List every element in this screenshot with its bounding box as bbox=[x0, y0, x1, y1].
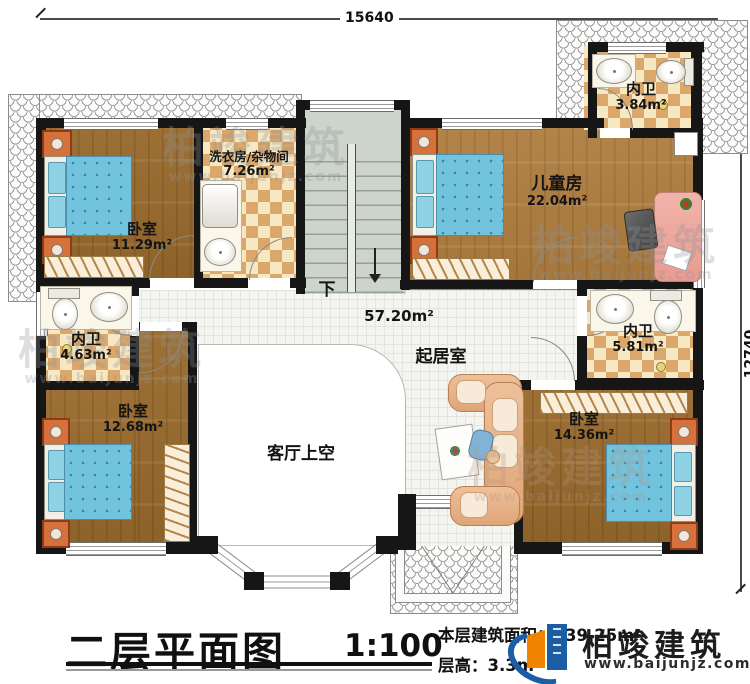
room-name: 内卫 bbox=[60, 330, 111, 348]
stairs-down-text: 下 bbox=[319, 280, 336, 300]
plant-icon bbox=[678, 196, 694, 212]
room-name: 儿童房 bbox=[527, 174, 587, 194]
room-area: 3.84m² bbox=[615, 98, 666, 114]
mattress-icon bbox=[64, 444, 132, 520]
room-label-bath-top: 内卫 3.84m² bbox=[615, 80, 666, 114]
living-area-label: 57.20m² bbox=[364, 307, 434, 325]
mattress-icon bbox=[436, 154, 504, 236]
pillow-icon bbox=[674, 486, 692, 516]
room-area: 57.20m² bbox=[364, 307, 434, 325]
sink-icon bbox=[204, 238, 236, 266]
room-name: 内卫 bbox=[615, 80, 666, 98]
nightstand-icon bbox=[410, 128, 438, 156]
door-bath-right bbox=[577, 296, 587, 336]
room-label-bedroom-bottom-left: 卧室 12.68m² bbox=[103, 402, 163, 436]
wall bbox=[401, 100, 410, 290]
bay-window bbox=[182, 488, 432, 610]
floor-plan-page: 15640 12740 bbox=[0, 0, 750, 684]
room-area: 7.26m² bbox=[209, 164, 289, 180]
pillow-icon bbox=[416, 160, 434, 194]
mattress-icon bbox=[606, 444, 672, 522]
rug-icon bbox=[412, 258, 510, 280]
room-label-children: 儿童房 22.04m² bbox=[527, 174, 587, 210]
window bbox=[226, 118, 268, 130]
room-name: 客厅上空 bbox=[267, 444, 335, 464]
room-area: 22.04m² bbox=[527, 194, 587, 210]
floor-drain-icon bbox=[656, 362, 666, 372]
window bbox=[608, 42, 666, 54]
brand-website: www.baijunjz.com bbox=[584, 656, 750, 672]
pillow-icon bbox=[674, 452, 692, 482]
door-bedroom-bottom-right bbox=[531, 380, 575, 390]
nightstand-icon bbox=[42, 418, 70, 446]
sink-icon bbox=[90, 292, 128, 322]
sink-icon bbox=[596, 294, 634, 324]
sofa-cushion bbox=[456, 380, 486, 404]
room-label-laundry: 洗衣房/杂物间 7.26m² bbox=[209, 149, 289, 180]
stair-handrail bbox=[347, 144, 356, 292]
stairs-down-arrow-icon bbox=[374, 248, 376, 274]
wall bbox=[691, 42, 702, 138]
pillow-icon bbox=[416, 196, 434, 228]
room-name: 内卫 bbox=[612, 322, 663, 340]
window bbox=[562, 542, 662, 556]
room-area: 12.68m² bbox=[103, 420, 163, 436]
wall bbox=[398, 494, 416, 550]
pillow-icon bbox=[48, 162, 66, 194]
window bbox=[64, 118, 158, 130]
sofa-cushion bbox=[460, 492, 488, 518]
person-head-icon bbox=[486, 450, 500, 464]
room-area: 11.29m² bbox=[112, 238, 172, 254]
flowers-icon bbox=[448, 444, 462, 458]
nightstand-icon bbox=[670, 522, 698, 550]
wardrobe-icon bbox=[164, 444, 190, 542]
niche-box bbox=[674, 132, 698, 156]
room-label-bedroom-top-left: 卧室 11.29m² bbox=[112, 220, 172, 254]
right-dimension-label: 12740 bbox=[742, 326, 750, 383]
door-bedroom-bottom-left bbox=[140, 322, 182, 331]
room-name: 洗衣房/杂物间 bbox=[209, 149, 289, 164]
stairs-down-arrowhead-icon bbox=[369, 274, 381, 283]
room-name: 起居室 bbox=[416, 347, 467, 367]
title-underline-thin bbox=[66, 669, 432, 671]
room-area: 5.81m² bbox=[612, 340, 663, 356]
washing-machine-icon bbox=[202, 184, 238, 228]
brand-logo-building-blue-icon bbox=[547, 624, 567, 670]
pillow-icon bbox=[48, 196, 66, 228]
room-label-void: 客厅上空 bbox=[267, 444, 335, 464]
computer-icon bbox=[623, 208, 658, 252]
pillow-icon bbox=[48, 482, 65, 512]
plan-scale: 1:100 bbox=[344, 628, 443, 664]
dimension-tick bbox=[35, 8, 45, 18]
room-label-bath-left: 内卫 4.63m² bbox=[60, 330, 111, 364]
room-label-bath-right: 内卫 5.81m² bbox=[612, 322, 663, 356]
nightstand-icon bbox=[670, 418, 698, 446]
room-name: 卧室 bbox=[554, 410, 614, 428]
brand-logo-building-orange-icon bbox=[527, 630, 545, 668]
room-label-bedroom-bottom-right: 卧室 14.36m² bbox=[554, 410, 614, 444]
wall bbox=[36, 381, 139, 390]
room-name: 卧室 bbox=[103, 402, 163, 420]
window bbox=[66, 542, 166, 556]
room-area: 4.63m² bbox=[60, 348, 111, 364]
top-dimension-label: 15640 bbox=[340, 10, 399, 26]
stairs-down-label: 下 bbox=[319, 280, 336, 300]
window bbox=[442, 118, 542, 130]
wall bbox=[296, 100, 305, 294]
room-label-living: 起居室 bbox=[416, 347, 467, 367]
room-area: 14.36m² bbox=[554, 428, 614, 444]
sofa-cushion bbox=[492, 398, 518, 432]
nightstand-icon bbox=[42, 130, 72, 158]
nightstand-icon bbox=[42, 520, 70, 548]
pillow-icon bbox=[48, 450, 65, 480]
window bbox=[310, 100, 394, 112]
wardrobe-icon bbox=[44, 256, 144, 278]
room-name: 卧室 bbox=[112, 220, 172, 238]
toilet-icon bbox=[52, 298, 78, 330]
